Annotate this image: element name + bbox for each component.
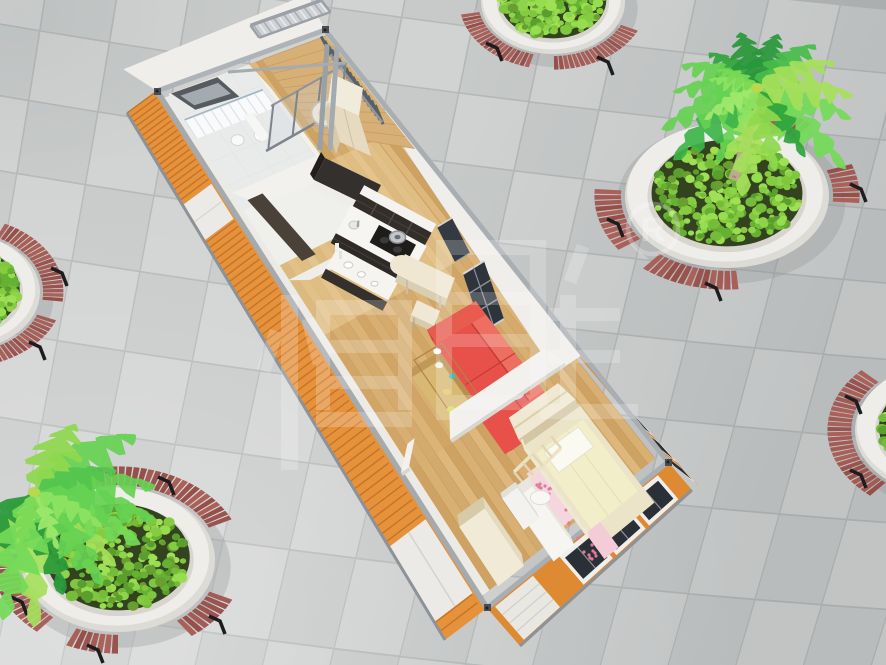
svg-text:R: R xyxy=(641,211,666,249)
